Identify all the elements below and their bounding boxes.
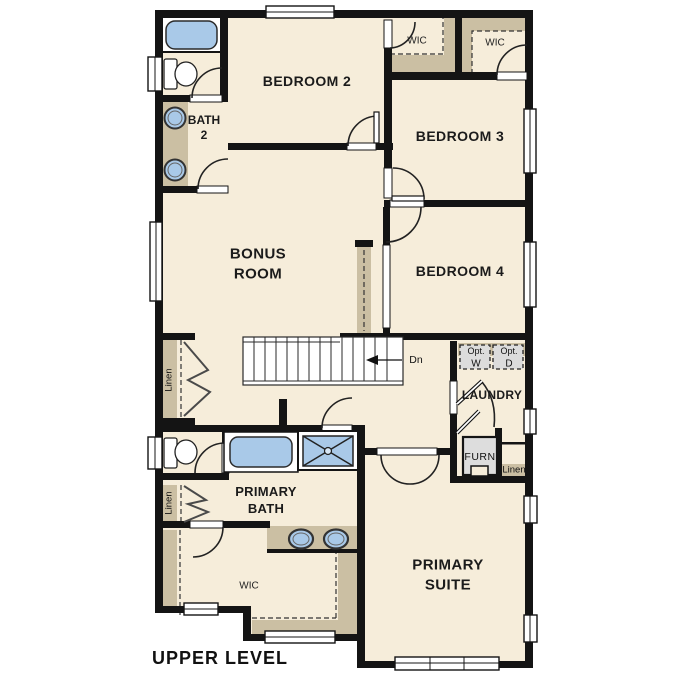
dryer-opt-label: Opt. [500, 346, 517, 356]
furnace-label: FURN [464, 451, 495, 463]
primary-suite-line1: PRIMARY [412, 556, 483, 576]
shower-primary-icon [298, 431, 358, 470]
wic-bedroom3-label: WIC [485, 37, 504, 49]
bonus-room-label: BONUS ROOM [230, 245, 286, 284]
bonus-room-line2: ROOM [230, 264, 286, 284]
primary-suite-line2: SUITE [412, 575, 483, 595]
wic-bedroom2-label: WIC [407, 35, 426, 47]
floor-plan: BEDROOM 2 BEDROOM 3 BEDROOM 4 BONUS ROOM… [0, 0, 687, 687]
linen-lower-label: Linen [165, 491, 176, 514]
staircase [243, 337, 403, 385]
linen-upper-label: Linen [165, 368, 176, 391]
toilet-bath2-icon [164, 59, 197, 89]
washer-opt-label: Opt. [467, 346, 484, 356]
floor-plan-canvas [0, 0, 687, 687]
bathtub-bath2-icon [163, 18, 220, 51]
bath-2-label: BATH 2 [188, 113, 220, 143]
bedroom-3-label: BEDROOM 3 [416, 128, 504, 144]
washer-label: W [471, 358, 480, 370]
bonus-room-line1: BONUS [230, 245, 286, 265]
wic-primary-label: WIC [239, 580, 258, 592]
bath-2-line1: BATH [188, 113, 220, 128]
plan-title: UPPER LEVEL [152, 648, 288, 669]
stairs-down-label: Dn [409, 354, 422, 366]
bedroom-4-label: BEDROOM 4 [416, 263, 504, 279]
primary-bath-label: PRIMARY BATH [235, 484, 297, 518]
dryer-label: D [505, 358, 512, 370]
bedroom-2-label: BEDROOM 2 [263, 73, 351, 89]
primary-bath-line2: BATH [235, 501, 297, 518]
bathtub-primary-icon [224, 432, 298, 472]
bath-2-line2: 2 [188, 128, 220, 143]
primary-bath-line1: PRIMARY [235, 484, 297, 501]
linen-laundry-label: Linen [502, 466, 525, 477]
primary-suite-label: PRIMARY SUITE [412, 556, 483, 595]
laundry-label: LAUNDRY [462, 389, 522, 403]
